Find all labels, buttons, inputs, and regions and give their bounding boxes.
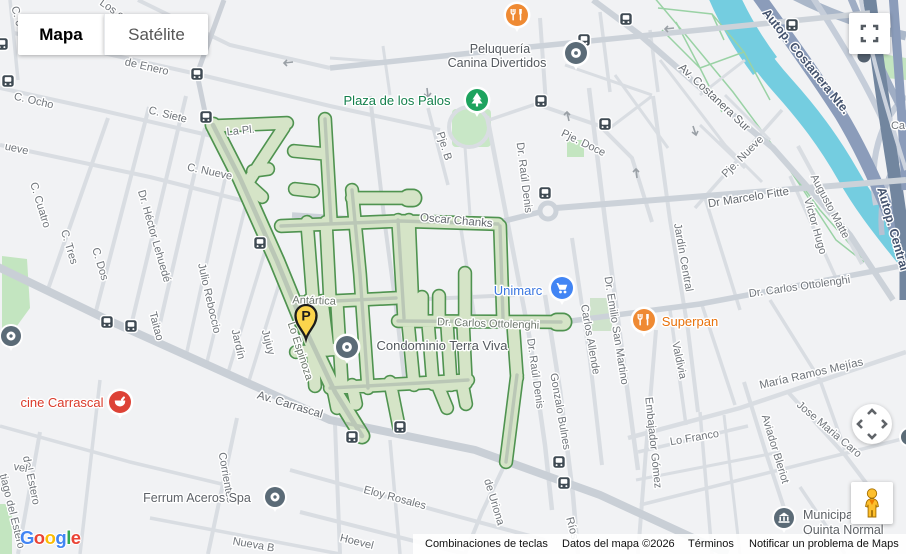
svg-text:g: g (55, 527, 66, 548)
svg-text:vel: vel (13, 461, 29, 475)
svg-text:Peluquería: Peluquería (470, 42, 531, 56)
svg-text:Canina Divertidos: Canina Divertidos (448, 56, 547, 70)
svg-text:Condominio Terra Viva: Condominio Terra Viva (376, 338, 508, 353)
svg-text:e: e (71, 527, 81, 548)
svg-text:Unimarc: Unimarc (494, 283, 543, 298)
svg-text:P: P (301, 308, 310, 324)
svg-text:o: o (45, 527, 56, 548)
svg-text:Ferrum Aceros Spa: Ferrum Aceros Spa (143, 491, 251, 505)
svg-text:Superpan: Superpan (662, 314, 718, 329)
svg-text:Plaza de los Palos: Plaza de los Palos (344, 93, 451, 108)
svg-text:Ca: Ca (891, 120, 906, 132)
svg-text:Antártica: Antártica (292, 294, 337, 308)
svg-text:o: o (34, 527, 45, 548)
svg-text:cine Carrascal: cine Carrascal (20, 395, 103, 410)
svg-text:G: G (20, 527, 34, 548)
